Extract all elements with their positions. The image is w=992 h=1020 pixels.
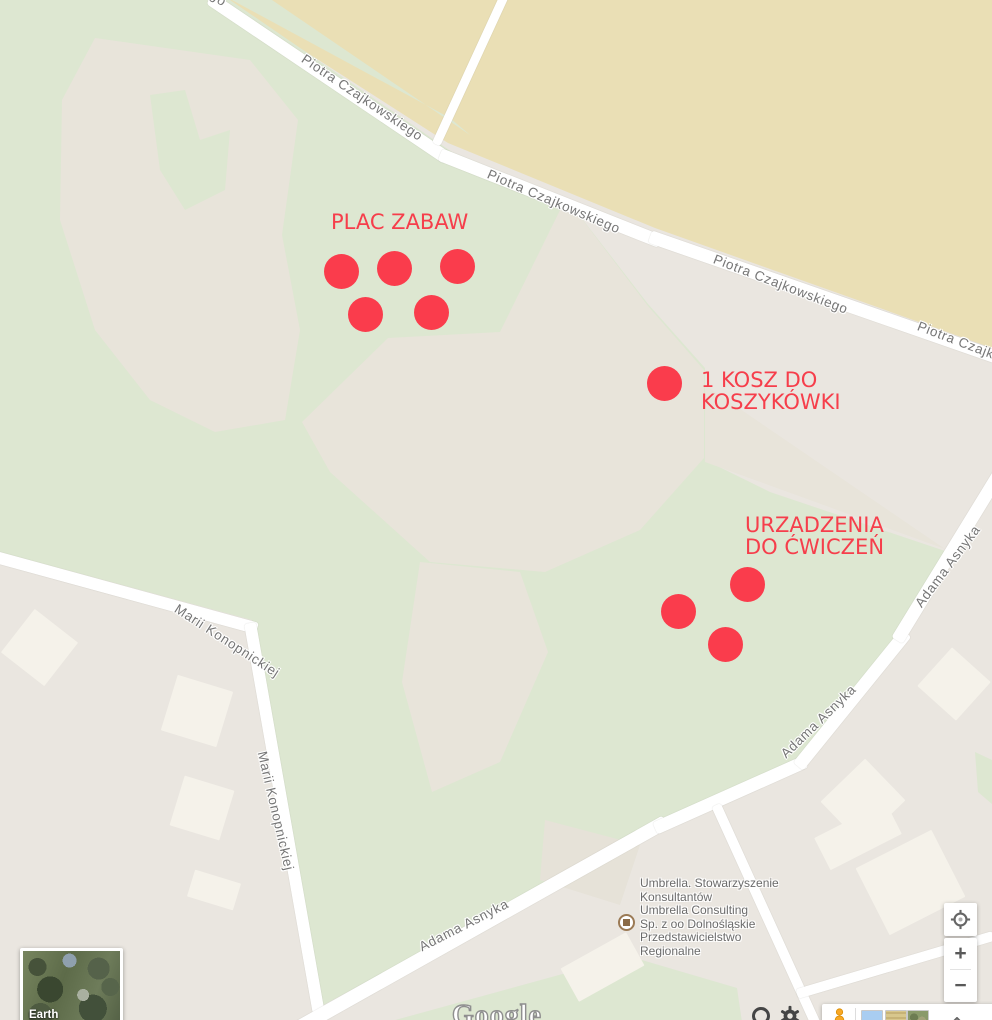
building bbox=[1, 609, 78, 686]
building bbox=[161, 675, 233, 747]
pegman-icon[interactable] bbox=[832, 1008, 847, 1020]
poi-line: Umbrella Consulting bbox=[640, 904, 779, 918]
toolbar-divider bbox=[855, 1008, 856, 1020]
annotation-urzadzenia-line1: URZADZENIA bbox=[745, 514, 884, 536]
collapse-chevron-icon[interactable] bbox=[950, 1012, 964, 1020]
marker-dot bbox=[440, 249, 475, 284]
marker-dot bbox=[377, 251, 412, 286]
poi-line: Sp. z oo Dolnośląskie bbox=[640, 918, 779, 932]
marker-dot bbox=[324, 254, 359, 289]
history-icon[interactable] bbox=[752, 1007, 770, 1020]
zoom-out-button[interactable]: − bbox=[944, 970, 977, 1001]
my-location-button[interactable] bbox=[944, 903, 977, 936]
annotation-plac-zabaw: PLAC ZABAW bbox=[331, 211, 468, 233]
settings-gear-icon[interactable] bbox=[779, 1005, 801, 1020]
building bbox=[170, 776, 235, 841]
annotation-kosz-line1: 1 KOSZ DO bbox=[701, 369, 841, 391]
annotation-kosz: 1 KOSZ DO KOSZYKÓWKI bbox=[701, 369, 841, 413]
earth-preview-button[interactable]: Earth bbox=[20, 948, 123, 1020]
map-layer-thumbnail[interactable] bbox=[861, 1010, 883, 1020]
building bbox=[917, 647, 990, 720]
poi-label: Umbrella. Stowarzyszenie Konsultantów Um… bbox=[640, 877, 779, 959]
earth-label: Earth bbox=[29, 1009, 58, 1020]
map-layer-thumbnail[interactable] bbox=[907, 1010, 929, 1020]
building bbox=[187, 870, 241, 911]
annotation-urzadzenia-line2: DO ĆWICZEŃ bbox=[745, 536, 884, 558]
marker-dot bbox=[414, 295, 449, 330]
zoom-in-button[interactable]: + bbox=[944, 938, 977, 969]
poi-line: Regionalne bbox=[640, 945, 779, 959]
map-layer-thumbnail[interactable] bbox=[885, 1010, 907, 1020]
annotation-urzadzenia: URZADZENIA DO ĆWICZEŃ bbox=[745, 514, 884, 558]
marker-dot bbox=[661, 594, 696, 629]
poi-line: Umbrella. Stowarzyszenie bbox=[640, 877, 779, 891]
marker-dot bbox=[730, 567, 765, 602]
zoom-panel: + − bbox=[944, 938, 977, 1002]
bottom-toolbar bbox=[822, 1004, 992, 1020]
annotation-kosz-line2: KOSZYKÓWKI bbox=[701, 391, 841, 413]
poi-line: Konsultantów bbox=[640, 891, 779, 905]
marker-dot bbox=[708, 627, 743, 662]
google-logo[interactable]: Google bbox=[452, 1000, 542, 1020]
marker-dot bbox=[348, 297, 383, 332]
poi-line: Przedstawicielstwo bbox=[640, 931, 779, 945]
crosshair-icon bbox=[949, 908, 972, 931]
poi-icon[interactable] bbox=[618, 914, 635, 931]
map-canvas[interactable]: go Piotra Czajkowskiego Piotra Czajkowsk… bbox=[0, 0, 992, 1020]
marker-dot bbox=[647, 366, 682, 401]
